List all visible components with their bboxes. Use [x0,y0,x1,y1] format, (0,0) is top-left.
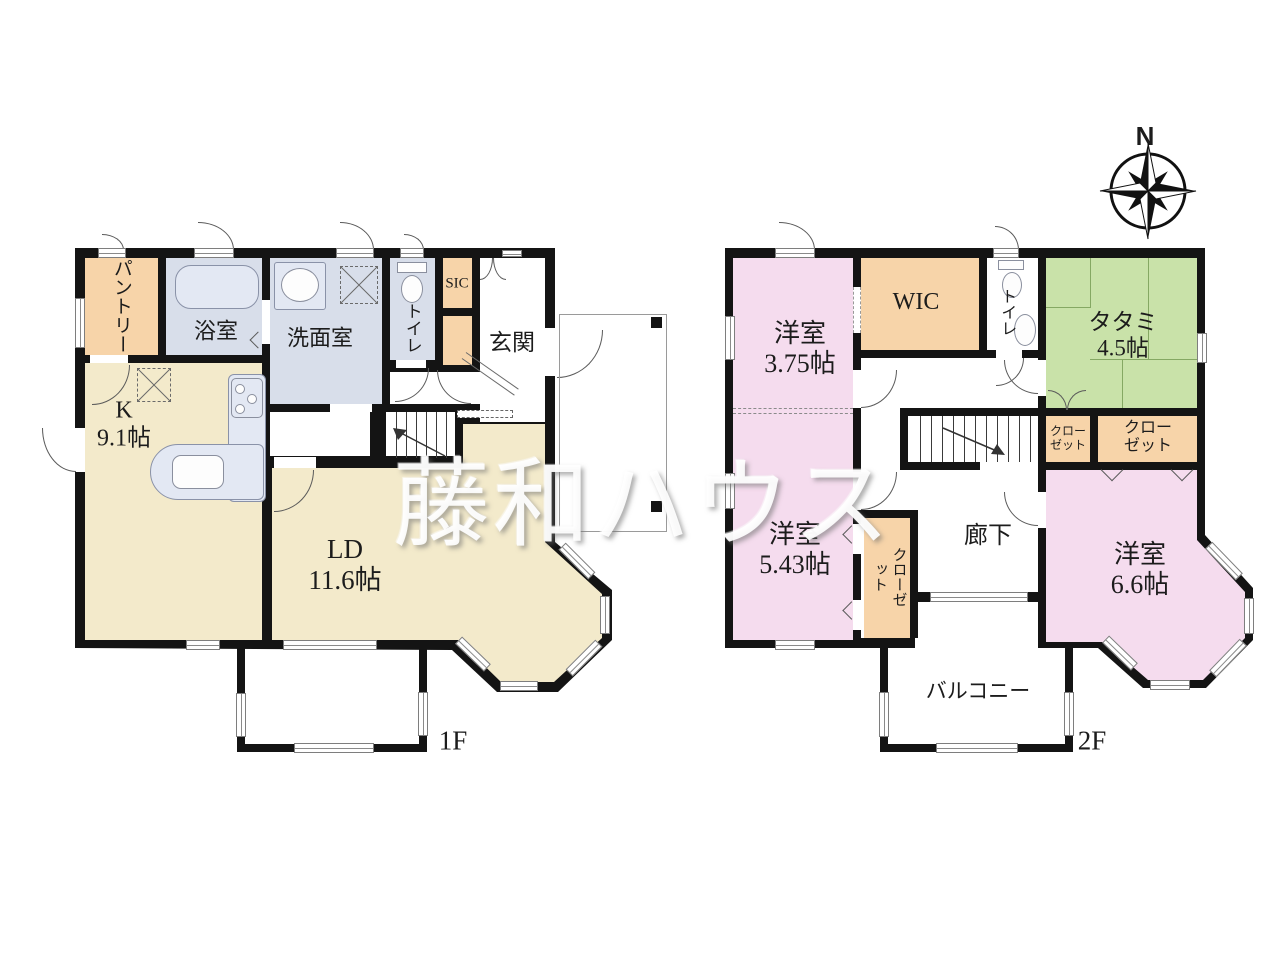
tatami-line [1046,307,1090,308]
label-hallway: 廊下 [964,523,1012,551]
tatami-name: タタミ [1089,310,1158,336]
door-opening [853,472,861,510]
window [725,316,735,360]
balcony-opening [936,743,1018,753]
bed3-size: 6.6帖 [1111,570,1170,600]
balcony-wall [880,744,938,752]
stairs-down-arrow [935,420,1015,465]
label-toilet-1f: トイレ [402,303,422,354]
door-opening [996,350,1022,358]
bed1-name: 洋室 [764,319,836,349]
label-closet-b: クロー ゼット [1124,420,1172,457]
window-swing-arc [340,222,374,250]
balcony-wall [880,648,888,694]
porch-post [651,501,662,512]
balcony-opening [1064,692,1074,736]
window [502,250,522,257]
door-opening [1038,360,1046,396]
bay-window [1244,598,1254,634]
closet-a-line1: クロー [1050,425,1086,439]
toilet-sink-2f [1014,314,1036,346]
toilet-tank-2f [998,260,1024,270]
terrace-wall [419,648,427,694]
window [993,248,1019,258]
compass-rose-icon [1098,141,1198,241]
door-opening [330,404,372,412]
entrance-door-opening [545,328,555,376]
door-opening [75,428,85,472]
toilet-bowl-1f [401,275,423,303]
room-bed1 [733,258,853,640]
ld-name: LD [308,534,381,565]
closet-b-line2: ゼット [1124,438,1172,456]
door-opening [396,360,426,368]
terrace-wall [237,744,295,752]
bay-window [1150,680,1190,690]
door-opening [853,370,861,408]
floor-opening-dash [457,410,513,418]
label-closet-c: クローゼット [869,541,908,613]
wall [857,510,918,518]
washer-space [340,266,378,304]
door-opening [90,355,128,363]
label-tatami: タタミ 4.5帖 [1089,310,1158,363]
label-closet-a: クロー ゼット [1050,425,1086,453]
bed1-size: 3.75帖 [764,349,836,379]
tatami-line [1090,258,1091,308]
tatami-size: 4.5帖 [1089,336,1158,362]
stair-landing-1f [270,412,378,456]
label-toilet-2f: トイレ [997,288,1015,336]
wic-opening [853,287,861,333]
kitchen-sink [172,455,224,489]
stair-tread [931,416,932,462]
window [930,592,1028,602]
window [75,298,85,348]
label-kitchen: K 9.1帖 [97,397,151,452]
window [194,248,234,258]
ld-size: 11.6帖 [308,565,381,596]
porch-outline [559,314,667,532]
tatami-line [1122,359,1123,408]
door-arc [42,428,76,472]
label-bed2: 洋室 5.43帖 [759,520,831,580]
wall [900,408,1038,416]
label-ld: LD 11.6帖 [308,534,381,596]
stair-tread [920,416,921,462]
window [1197,333,1207,363]
balcony-wall [1065,648,1073,694]
wall [910,518,918,638]
terrace-wall [237,648,245,694]
kitchen-size: 9.1帖 [97,425,151,453]
terrace-wall [419,735,427,752]
window [283,640,377,650]
stair-tread [1030,416,1031,462]
window [775,640,815,650]
window-swing-arc [779,222,815,250]
label-sic: SIC [445,275,468,292]
terrace-opening [418,692,428,736]
wall [370,404,463,412]
bed1-divider [733,408,853,414]
bed2-size: 5.43帖 [759,550,831,580]
stove-burner [235,384,245,394]
label-wic: WIC [893,289,940,317]
label-washroom: 洗面室 [287,325,353,350]
wall [900,408,908,470]
stair-tread [1019,416,1020,462]
vanity-sink [281,268,319,302]
door-opening [274,457,316,468]
window [98,248,126,258]
balcony-wall [1065,734,1073,752]
window-swing-arc [198,222,234,250]
window-swing-arc [995,226,1019,250]
label-bed3: 洋室 6.6帖 [1111,540,1170,600]
stove-burner [235,404,245,414]
stairs-up-arrow [385,420,455,465]
closet-a-line2: ゼット [1050,439,1086,453]
porch-post [651,317,662,328]
terrace-opening [236,693,246,737]
floor-plan: パントリー 浴室 洗面室 トイレ SIC 玄関 K 9.1帖 LD 11.6帖 … [0,0,1280,960]
label-bed1: 洋室 3.75帖 [764,319,836,379]
label-balcony: バルコニー [926,679,1031,703]
bed3-name: 洋室 [1111,540,1170,570]
kitchen-name: K [97,397,151,425]
bed2-name: 洋室 [759,520,831,550]
bay-window [500,681,538,691]
window [186,640,220,650]
toilet-tank-1f [397,262,427,273]
bay-window [600,596,610,634]
room-sic-lower [443,316,472,365]
door-opening [1038,492,1046,528]
room-ld-right [463,424,545,640]
balcony-opening [879,692,889,737]
bathtub [175,265,259,309]
label-pantry: パントリー [110,259,132,354]
window [725,473,735,509]
window [400,248,424,258]
label-entrance: 玄関 [489,330,535,356]
window [775,248,815,258]
wall [455,412,463,462]
label-bath: 浴室 [194,318,238,343]
label-floor-1f: 1F [439,725,468,756]
terrace-opening [294,743,374,753]
label-floor-2f: 2F [1078,725,1107,756]
window [336,248,374,258]
closet-b-line1: クロー [1124,420,1172,438]
stove-burner [247,394,257,404]
